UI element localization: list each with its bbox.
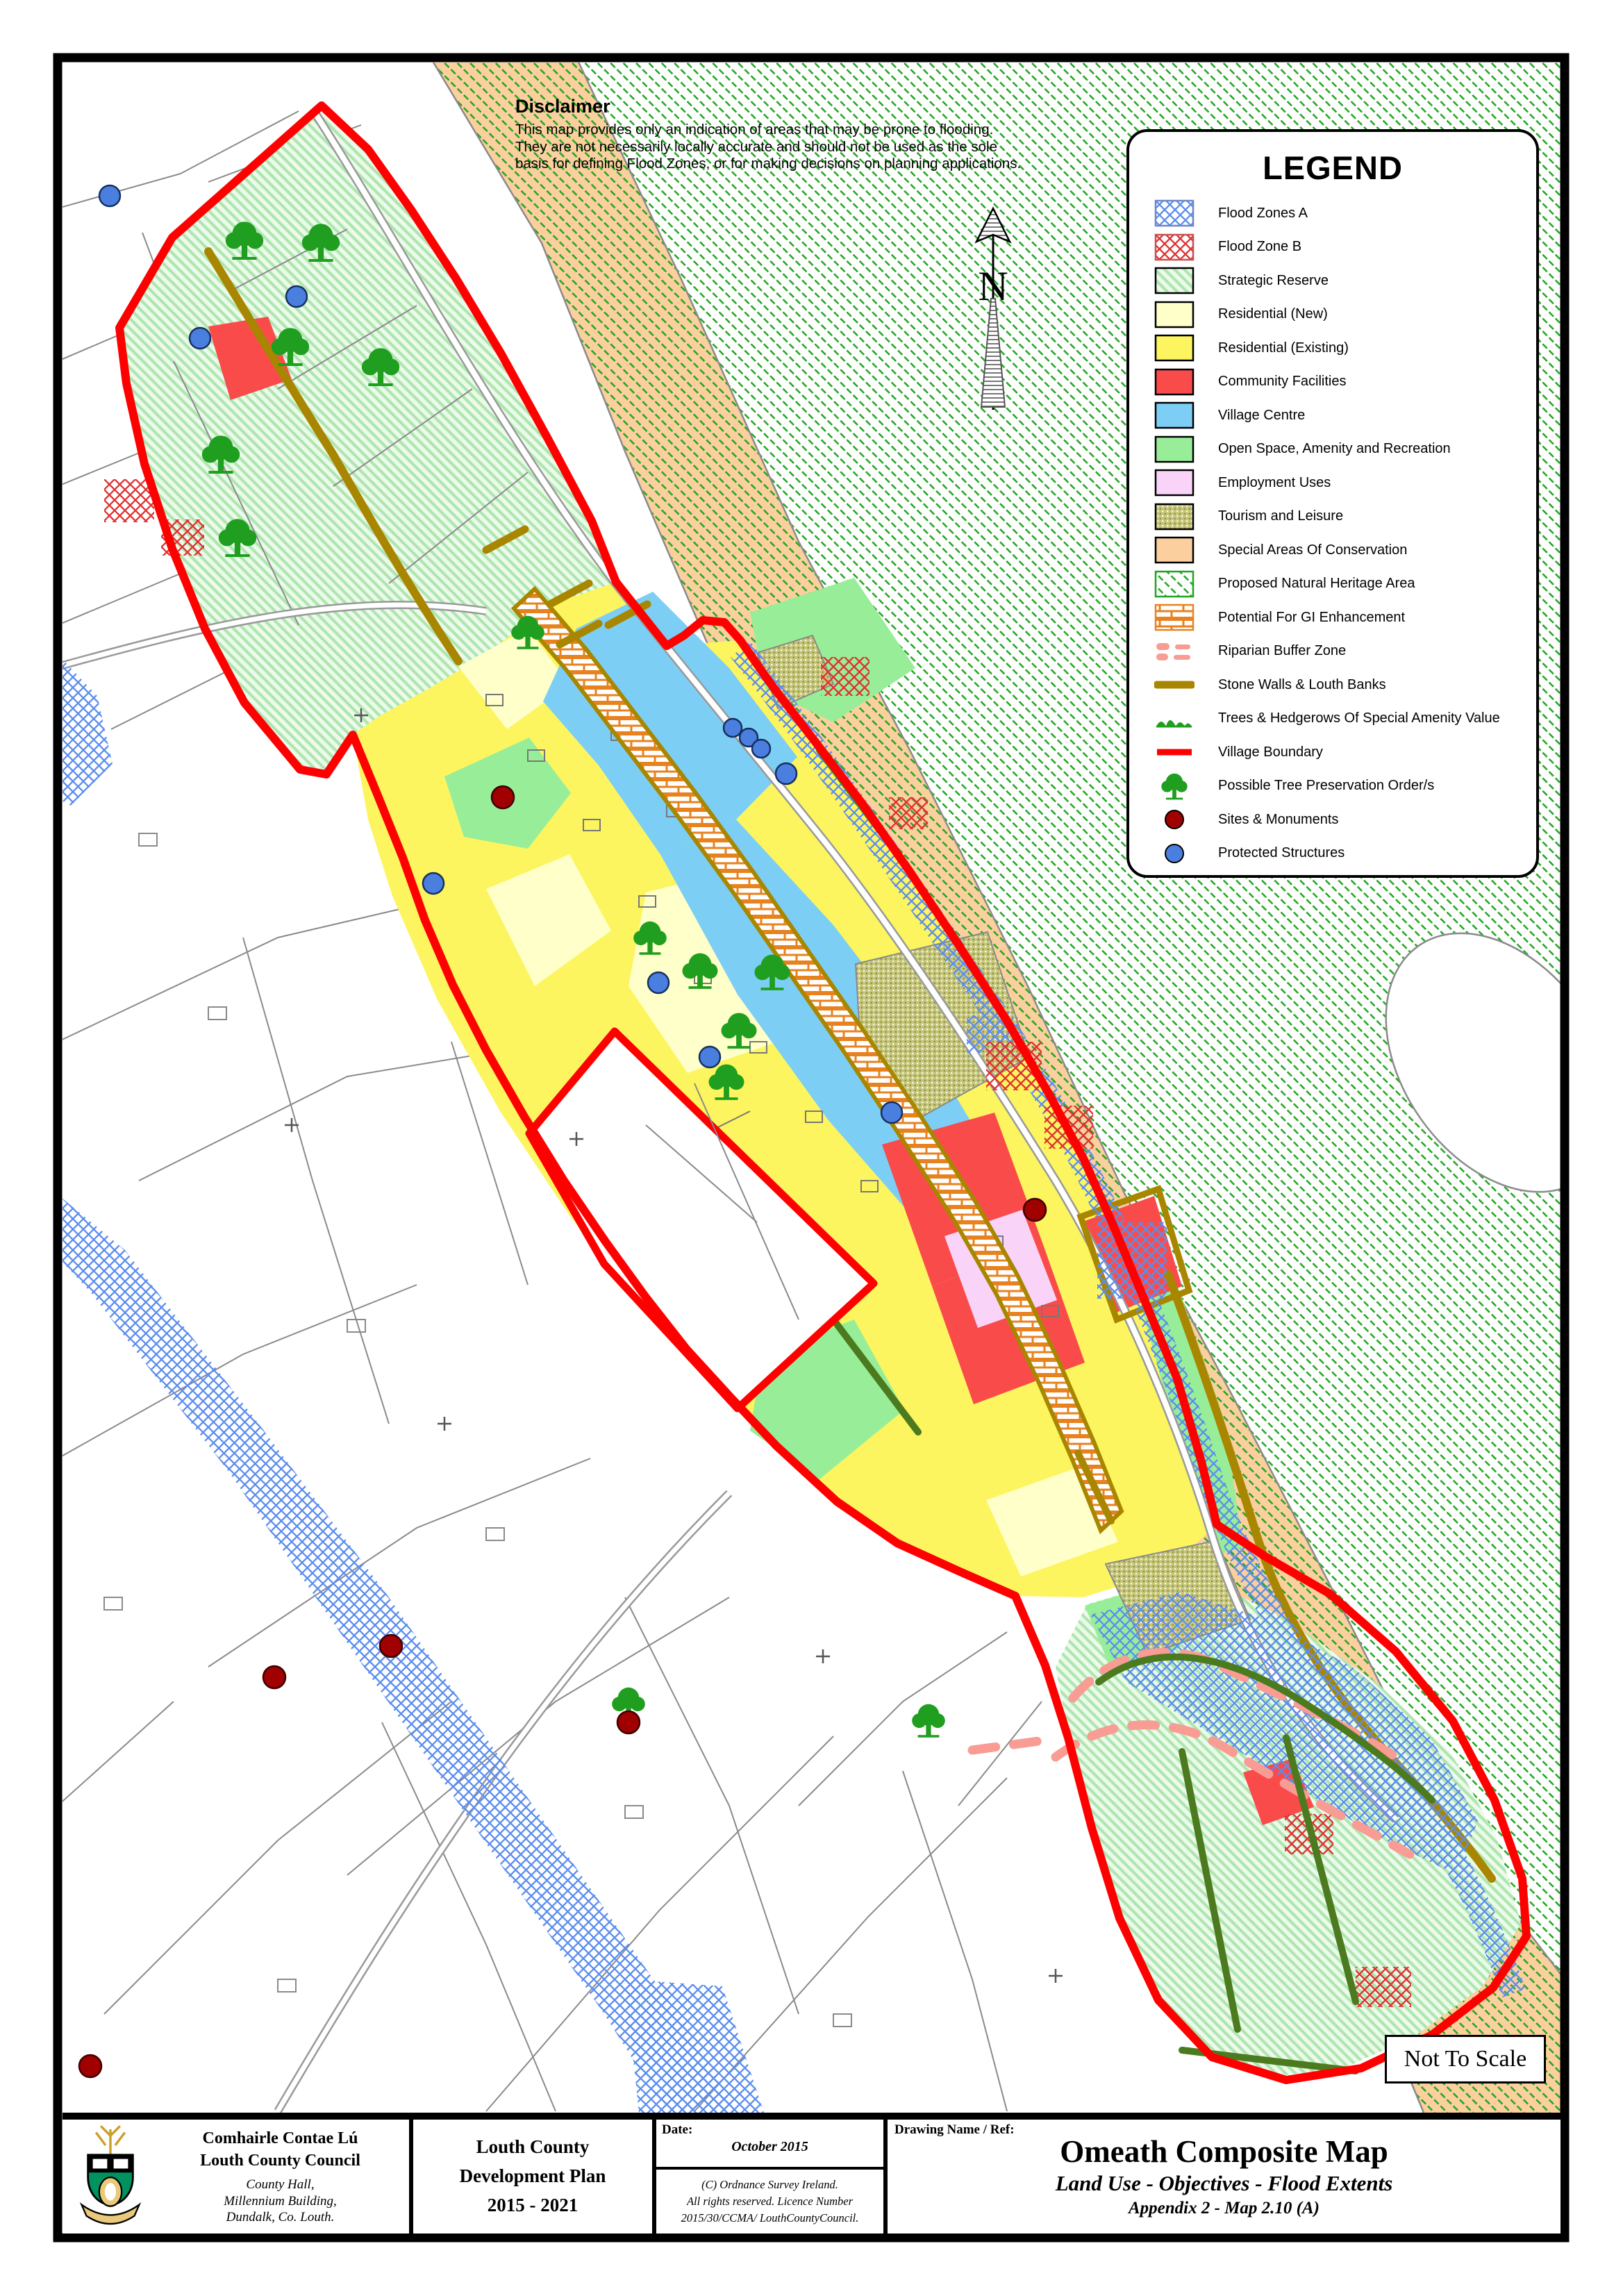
legend-item: Protected Structures [1154, 837, 1536, 871]
legend-swatch-employment [1154, 469, 1218, 497]
drawing-title: Omeath Composite Map [888, 2133, 1560, 2170]
legend-item: Village Boundary [1154, 735, 1536, 770]
legend-swatch-gi [1154, 604, 1218, 631]
copyright-line: (C) Ordnance Survey Ireland. [701, 2177, 838, 2193]
disclaimer-line: This map provides only an indication of … [515, 122, 1099, 139]
legend-item-label: Village Boundary [1218, 744, 1323, 760]
north-label: N [978, 263, 1008, 309]
legend-item-label: Residential (New) [1218, 306, 1328, 322]
legend-item-label: Strategic Reserve [1218, 273, 1329, 289]
plan-title-line: Development Plan [460, 2162, 606, 2191]
legend-item-label: Special Areas Of Conservation [1218, 542, 1407, 558]
legend-item-label: Potential For GI Enhancement [1218, 610, 1405, 626]
legend-swatch-monument [1154, 806, 1218, 833]
legend-title: LEGEND [1129, 149, 1536, 187]
legend-swatch-tpo-tree [1154, 772, 1218, 800]
legend-swatch-res-existing [1154, 334, 1218, 362]
legend-item-label: Tourism and Leisure [1218, 508, 1343, 524]
legend-item: Special Areas Of Conservation [1154, 533, 1536, 567]
legend-item-label: Flood Zones A [1218, 206, 1308, 222]
legend-item-label: Employment Uses [1218, 475, 1331, 491]
legend-item-label: Flood Zone B [1218, 239, 1301, 255]
legend-swatch-tourism [1154, 503, 1218, 531]
legend-item: Trees & Hedgerows Of Special Amenity Val… [1154, 702, 1536, 736]
legend-swatch-village-centre [1154, 401, 1218, 429]
council-address-line: Dundalk, Co. Louth. [151, 2209, 409, 2226]
legend-item: Strategic Reserve [1154, 264, 1536, 298]
copyright-line: 2015/30/CCMA/ LouthCountyCouncil. [681, 2210, 859, 2227]
legend-item-label: Possible Tree Preservation Order/s [1218, 778, 1434, 794]
title-block: Comhairle Contae Lú Louth County Council… [63, 2113, 1560, 2233]
drawing-subtitle: Land Use - Objectives - Flood Extents [888, 2171, 1560, 2196]
legend-item: Community Facilities [1154, 365, 1536, 399]
scale-note: Not To Scale [1404, 2046, 1526, 2072]
date-label: Date: [662, 2122, 878, 2138]
council-address-line: Millennium Building, [151, 2193, 409, 2210]
legend-item-label: Sites & Monuments [1218, 812, 1338, 828]
disclaimer-line: basis for defining Flood Zones, or for m… [515, 156, 1099, 173]
legend-items: Flood Zones A Flood Zone B Strategic Res… [1129, 197, 1536, 870]
legend-item: Sites & Monuments [1154, 803, 1536, 837]
date-value: October 2015 [662, 2139, 878, 2155]
drawing-appendix: Appendix 2 - Map 2.10 (A) [888, 2199, 1560, 2218]
council-name-english: Louth County Council [151, 2149, 409, 2172]
map-sheet: N Disclaimer This map provides only an i… [0, 0, 1623, 2296]
legend-item: Riparian Buffer Zone [1154, 635, 1536, 669]
legend-item-label: Proposed Natural Heritage Area [1218, 576, 1415, 592]
legend-swatch-res-new [1154, 301, 1218, 328]
plan-title-box: Louth County Development Plan 2015 - 202… [413, 2120, 656, 2233]
drawing-name-box: Drawing Name / Ref: Omeath Composite Map… [888, 2120, 1560, 2233]
legend-swatch-community [1154, 368, 1218, 396]
disclaimer: Disclaimer This map provides only an ind… [515, 96, 1099, 173]
legend-item: Stone Walls & Louth Banks [1154, 668, 1536, 702]
legend-swatch-strategic [1154, 267, 1218, 294]
disclaimer-line: They are not necessarily locally accurat… [515, 139, 1099, 156]
copyright-line: All rights reserved. Licence Number [687, 2193, 853, 2210]
legend-item: Residential (Existing) [1154, 331, 1536, 365]
legend-item: Flood Zone B [1154, 231, 1536, 265]
legend-item: Potential For GI Enhancement [1154, 601, 1536, 635]
legend-item: Flood Zones A [1154, 197, 1536, 231]
legend-swatch-village-boundary [1154, 738, 1218, 766]
council-name-irish: Comhairle Contae Lú [151, 2127, 409, 2149]
council-address-line: County Hall, [151, 2177, 409, 2193]
legend-swatch-flood-a [1154, 199, 1218, 227]
legend-item: Possible Tree Preservation Order/s [1154, 770, 1536, 804]
legend-item: Open Space, Amenity and Recreation [1154, 433, 1536, 467]
legend-panel: LEGEND Flood Zones A Flood Zone B Strate… [1126, 129, 1539, 878]
legend-swatch-riparian [1154, 638, 1218, 665]
legend-swatch-stone-wall [1154, 671, 1218, 699]
legend-item-label: Village Centre [1218, 408, 1305, 424]
plan-title-line: Louth County [476, 2133, 590, 2162]
legend-item: Employment Uses [1154, 466, 1536, 500]
legend-item-label: Protected Structures [1218, 845, 1345, 861]
legend-swatch-sac [1154, 536, 1218, 564]
legend-item: Village Centre [1154, 399, 1536, 433]
legend-item: Tourism and Leisure [1154, 500, 1536, 534]
legend-item-label: Stone Walls & Louth Banks [1218, 677, 1386, 693]
legend-swatch-open-space [1154, 435, 1218, 463]
legend-swatch-trees-hedgerows [1154, 705, 1218, 733]
scale-note-box: Not To Scale [1385, 2035, 1546, 2083]
legend-item: Proposed Natural Heritage Area [1154, 567, 1536, 601]
legend-swatch-protected [1154, 840, 1218, 867]
legend-item-label: Riparian Buffer Zone [1218, 643, 1346, 659]
legend-item-label: Residential (Existing) [1218, 340, 1349, 356]
council-crest [69, 2124, 151, 2229]
legend-item-label: Trees & Hedgerows Of Special Amenity Val… [1218, 710, 1500, 726]
date-copyright-box: Date: October 2015 (C) Ordnance Survey I… [656, 2120, 888, 2233]
plan-title-line: 2015 - 2021 [488, 2191, 579, 2220]
legend-item: Residential (New) [1154, 298, 1536, 332]
legend-item-label: Open Space, Amenity and Recreation [1218, 441, 1451, 457]
legend-swatch-flood-b [1154, 233, 1218, 261]
legend-swatch-pnha [1154, 570, 1218, 598]
disclaimer-heading: Disclaimer [515, 96, 1099, 117]
legend-item-label: Community Facilities [1218, 374, 1346, 390]
council-box: Comhairle Contae Lú Louth County Council… [63, 2120, 413, 2233]
